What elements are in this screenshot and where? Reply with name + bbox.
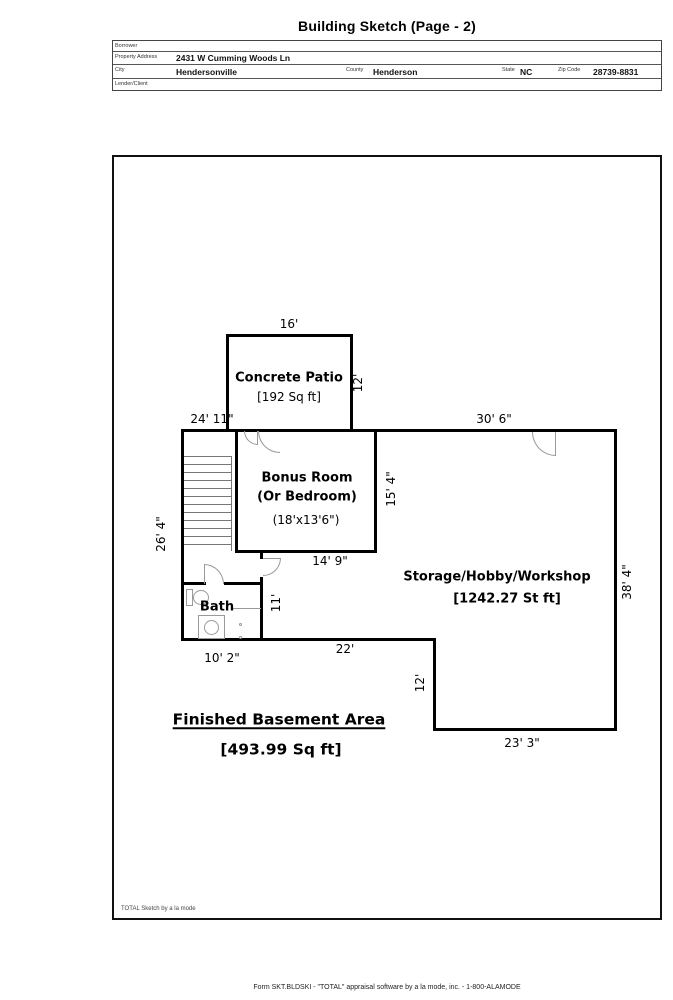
county-value: Henderson	[373, 67, 417, 77]
table-row: Borrower	[113, 41, 661, 52]
wall	[433, 640, 436, 731]
dim-top-left-label: 24' 11"	[190, 413, 233, 425]
dim-step-right-label: 12'	[414, 674, 426, 693]
property-address-label: Property Address	[115, 54, 157, 60]
toilet-tank-icon	[186, 589, 193, 606]
page-title: Building Sketch (Page - 2)	[112, 18, 662, 34]
zip-label: Zip Code	[558, 67, 580, 73]
bath-divider-line	[233, 608, 261, 609]
dim-bonus-bottom-label: 14' 9"	[312, 555, 348, 567]
dim-left-side-label: 26' 4"	[155, 516, 167, 552]
form-footer: Form SKT.BLDSKI - "TOTAL" appraisal soft…	[112, 984, 662, 991]
storage-room-label: Storage/Hobby/Workshop	[403, 571, 590, 584]
dim-patio-right-label: 12'	[352, 374, 364, 393]
table-row: Lender/Client	[113, 79, 661, 90]
state-label: State	[502, 67, 515, 73]
dim-bonus-right-label: 15' 4"	[385, 471, 397, 507]
table-row: Property Address 2431 W Cumming Woods Ln	[113, 52, 661, 65]
dim-right-side-label: 38' 4"	[621, 564, 633, 600]
bonus-room-label: Bonus Room	[261, 472, 352, 485]
dim-bottom-right-label: 23' 3"	[504, 737, 540, 749]
property-address-value: 2431 W Cumming Woods Ln	[176, 53, 290, 63]
finished-basement-label: Finished Basement Area	[173, 712, 386, 728]
property-info-table: Borrower Property Address 2431 W Cumming…	[112, 40, 662, 91]
wall	[235, 550, 377, 553]
dim-patio-top-label: 16'	[280, 318, 299, 330]
zip-value: 28739-8831	[593, 67, 638, 77]
page: Building Sketch (Page - 2) Borrower Prop…	[0, 0, 673, 1000]
lender-client-label: Lender/Client	[115, 81, 148, 87]
staircase	[184, 456, 232, 551]
wall	[235, 429, 238, 553]
bonus-size-label: (18'x13'6")	[273, 514, 340, 526]
dim-mid-bottom-label: 22'	[336, 643, 355, 655]
finished-basement-area-label: [493.99 Sq ft]	[220, 742, 341, 758]
bath-room-label: Bath	[200, 601, 234, 614]
state-value: NC	[520, 67, 532, 77]
fixture-dot-icon	[239, 636, 242, 639]
city-value: Hendersonville	[176, 67, 237, 77]
table-row: City Hendersonville County Henderson Sta…	[113, 65, 661, 79]
wall	[433, 728, 617, 731]
fixture-dot-icon	[239, 623, 242, 626]
sink-basin-icon	[204, 620, 219, 635]
dim-top-right-label: 30' 6"	[476, 413, 512, 425]
patio-room-label: Concrete Patio	[235, 372, 343, 385]
dim-hall-label: 11'	[270, 594, 282, 613]
bonus-room-label2: (Or Bedroom)	[257, 491, 357, 504]
county-label: County	[346, 67, 363, 73]
borrower-label: Borrower	[115, 43, 137, 49]
city-label: City	[115, 67, 124, 73]
sketch-watermark: TOTAL Sketch by a la mode	[121, 906, 196, 912]
wall	[224, 582, 263, 585]
wall	[260, 577, 263, 641]
storage-area-label: [1242.27 St ft]	[453, 593, 561, 606]
wall	[374, 429, 377, 553]
patio-area-label: [192 Sq ft]	[257, 391, 321, 403]
dim-bath-bottom-label: 10' 2"	[204, 652, 240, 664]
wall	[614, 429, 617, 731]
wall	[181, 582, 206, 585]
